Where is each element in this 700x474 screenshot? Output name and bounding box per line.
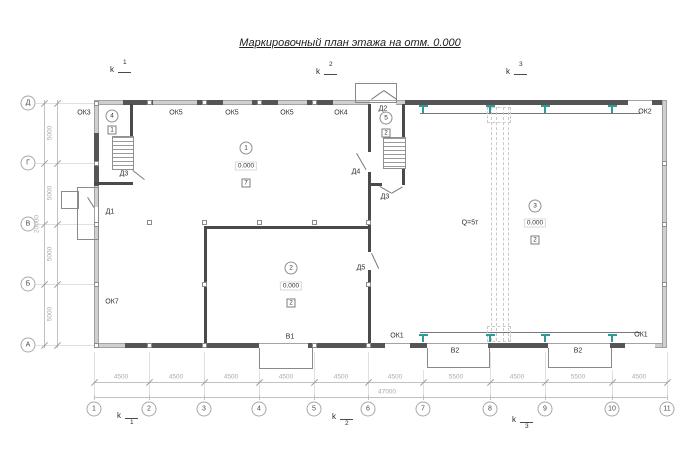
label-v2-left: В2 [451, 348, 460, 355]
axis-bubble-V: В [21, 217, 36, 232]
steel-column-icon [419, 334, 428, 342]
section-mark-1-bottom: k 1 [117, 410, 143, 428]
room-type-4: 1 [108, 126, 117, 135]
grid-extension-line [204, 352, 205, 400]
crane-runway-bottom [420, 332, 640, 333]
column-marker [147, 100, 152, 105]
entrance-porch-d2 [355, 83, 397, 103]
grid-extension-line [545, 352, 546, 400]
steel-column-icon [608, 105, 617, 113]
grid-bubble-3: 3 [197, 402, 212, 417]
column-marker [94, 282, 99, 287]
room-type-5: 2 [382, 129, 391, 138]
grid-bubble-2: 2 [142, 402, 157, 417]
door-leaf-d5 [371, 253, 379, 269]
label-ok1-right: ОК1 [634, 332, 647, 339]
grid-extension-line [94, 352, 95, 400]
grid-bubble-5: 5 [307, 402, 322, 417]
room-type-1: 7 [242, 179, 251, 188]
dimension-line-bottom-total [94, 397, 667, 398]
room-type-2: 2 [287, 299, 296, 308]
wall-panel-strip [610, 343, 625, 348]
steel-column-icon [419, 105, 428, 113]
stair-flight-room5 [383, 137, 406, 169]
steel-column-icon [541, 105, 550, 113]
wall-panel-strip [308, 343, 385, 348]
dim-text-bay: 4500 [510, 374, 524, 381]
axis-bubble-D: Д [21, 96, 36, 111]
column-marker [366, 220, 371, 225]
grid-extension-line [314, 352, 315, 400]
label-d2: Д2 [379, 106, 388, 113]
dim-tick-small [667, 395, 668, 400]
dim-text-5000: 5000 [47, 186, 54, 200]
section-line [118, 72, 131, 73]
column-marker [366, 343, 371, 348]
section-number: 1 [130, 419, 134, 426]
column-marker [147, 343, 152, 348]
window-strip [307, 100, 333, 105]
label-ok4: ОК4 [334, 110, 347, 117]
window-strip [197, 100, 223, 105]
grid-bubble-11: 11 [660, 402, 675, 417]
dim-tick-small [490, 395, 491, 400]
column-marker [94, 101, 99, 106]
grid-extension-line [667, 352, 668, 400]
grid-extension-line [149, 352, 150, 400]
label-crane-capacity: Q=5т [462, 220, 479, 227]
window-strip [252, 100, 278, 105]
floor-plan-drawing: Маркировочный план этажа на отм. 0.000 k… [0, 0, 700, 474]
room-number-2: 2 [285, 262, 298, 275]
dim-tick-small [545, 395, 546, 400]
door-leaf-d4 [356, 153, 366, 170]
dim-tick-small [204, 395, 205, 400]
dim-text-bay: 4500 [224, 374, 238, 381]
label-d1: Д1 [106, 209, 115, 216]
dimension-line-bottom-bays [94, 382, 667, 383]
section-number: 2 [329, 61, 333, 68]
window-strip-ok3 [94, 133, 99, 186]
dim-text-total: 47000 [378, 389, 396, 396]
label-ok5-1: ОК5 [169, 110, 182, 117]
axis-bubble-A: А [21, 338, 36, 353]
steel-column-icon [541, 334, 550, 342]
column-marker [202, 100, 207, 105]
room-elevation-1: 0.000 [235, 162, 257, 171]
section-line [514, 74, 527, 75]
grid-bubble-8: 8 [483, 402, 498, 417]
section-number: 3 [525, 423, 529, 430]
monorail-line [496, 107, 497, 341]
steel-column-icon [486, 105, 495, 113]
monorail-line [491, 107, 492, 341]
column-marker [257, 100, 262, 105]
grid-extension-line [490, 352, 491, 400]
label-ok5-3: ОК5 [280, 110, 293, 117]
monorail-line [503, 107, 504, 341]
steel-column-icon [608, 334, 617, 342]
room-number-1: 1 [240, 142, 253, 155]
window-opening-ok1-left [385, 344, 410, 348]
column-marker [366, 282, 371, 287]
crane-runway-top [420, 113, 640, 114]
axis-bubble-B: Б [21, 277, 36, 292]
room-type-3: 2 [531, 236, 540, 245]
column-marker [202, 343, 207, 348]
column-marker [662, 161, 667, 166]
gate-apron-v1 [259, 348, 313, 369]
room-number-5: 5 [380, 112, 393, 125]
section-mark-2-top: k 2 [316, 62, 342, 80]
monorail-line [508, 107, 509, 341]
label-ok5-2: ОК5 [225, 110, 238, 117]
section-letter: k [332, 412, 336, 421]
column-marker [662, 282, 667, 287]
column-marker [662, 222, 667, 227]
dim-text-bay: 4500 [632, 374, 646, 381]
grid-bubble-9: 9 [538, 402, 553, 417]
section-letter: k [506, 67, 510, 76]
label-d3-mid: Д3 [381, 194, 390, 201]
wall-panel-strip [652, 100, 662, 105]
grid-extension-line [368, 352, 369, 400]
label-v1: В1 [286, 334, 295, 341]
door-leaf-d3-mid-a [380, 186, 392, 193]
column-marker [202, 220, 207, 225]
label-ok1-left: ОК1 [390, 333, 403, 340]
section-letter: k [117, 411, 121, 420]
dim-text-5000: 5000 [47, 247, 54, 261]
room-number-4: 4 [106, 110, 119, 123]
dim-text-5000: 5000 [47, 126, 54, 140]
section-letter: k [316, 67, 320, 76]
section-number: 1 [123, 59, 127, 66]
dim-tick-small [423, 395, 424, 400]
column-marker [312, 100, 317, 105]
grid-bubble-1: 1 [87, 402, 102, 417]
wall-stair4-bottom [94, 182, 133, 185]
steel-column-icon [486, 334, 495, 342]
dim-tick-small [94, 395, 95, 400]
section-number: 2 [345, 420, 349, 427]
section-letter: k [110, 65, 114, 74]
column-marker [94, 222, 99, 227]
label-d3-left: Д3 [120, 171, 129, 178]
section-mark-3-top: k 3 [506, 62, 532, 80]
section-line [324, 74, 337, 75]
room-elevation-3: 0.000 [524, 219, 546, 228]
label-ok2: ОК2 [638, 109, 651, 116]
grid-bubble-4: 4 [252, 402, 267, 417]
label-ok3: ОК3 [77, 110, 90, 117]
label-v2-right: В2 [574, 348, 583, 355]
vestibule [77, 187, 99, 240]
window-opening-ok2 [628, 101, 652, 105]
wall-interior-axisV [204, 226, 371, 229]
wall-panel-strip [125, 343, 259, 348]
label-ok7: ОК7 [105, 299, 118, 306]
label-d4: Д4 [352, 169, 361, 176]
grid-bubble-6: 6 [361, 402, 376, 417]
dim-text-bay: 4500 [334, 374, 348, 381]
dim-text-5000: 5000 [47, 307, 54, 321]
section-mark-3-bottom: k 3 [512, 414, 538, 432]
stair-flight-room4 [112, 136, 134, 170]
dim-text-bay: 4500 [169, 374, 183, 381]
drawing-title: Маркировочный план этажа на отм. 0.000 [0, 37, 700, 49]
column-marker [312, 343, 317, 348]
dim-text-bay: 4500 [279, 374, 293, 381]
dim-text-bay: 5500 [571, 374, 585, 381]
room-elevation-2: 0.000 [280, 282, 302, 291]
door-leaf-d3-mid-b [391, 187, 403, 194]
grid-bubble-10: 10 [605, 402, 620, 417]
label-d5: Д5 [357, 265, 366, 272]
column-marker [94, 343, 99, 348]
section-mark-1-top: k 1 [110, 60, 136, 78]
dim-text-bay: 4500 [388, 374, 402, 381]
column-marker [257, 220, 262, 225]
dim-tick-small [149, 395, 150, 400]
wall-panel-strip [488, 343, 548, 348]
dim-text-bay: 5500 [449, 374, 463, 381]
section-number: 3 [519, 61, 523, 68]
dim-tick-small [612, 395, 613, 400]
wall-panel-strip [410, 343, 427, 348]
dim-tick-small [314, 395, 315, 400]
dim-text-bay: 4500 [114, 374, 128, 381]
axis-bubble-G: Г [21, 156, 36, 171]
column-marker [94, 161, 99, 166]
door-leaf-d3-left [132, 170, 144, 180]
dim-tick-small [368, 395, 369, 400]
section-mark-2-bottom: k 2 [332, 411, 358, 429]
wall-interior-grid6-a [368, 104, 371, 152]
column-marker [312, 220, 317, 225]
section-letter: k [512, 415, 516, 424]
room-number-3: 3 [529, 200, 542, 213]
dim-tick-small [259, 395, 260, 400]
grid-bubble-7: 7 [416, 402, 431, 417]
column-marker [147, 220, 152, 225]
window-opening-ok1-right [625, 344, 655, 348]
wall-panel-strip-top-right [405, 100, 628, 105]
vestibule-porch [61, 191, 79, 209]
column-marker [202, 282, 207, 287]
